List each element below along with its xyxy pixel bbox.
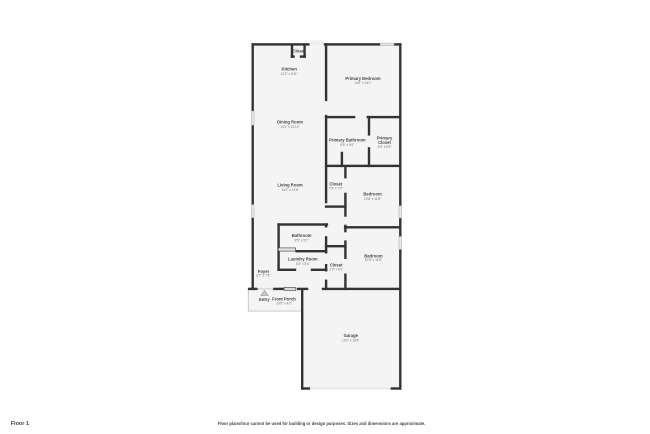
svg-text:14'3" x 8'11": 14'3" x 8'11" (281, 72, 298, 76)
svg-text:Bedroom: Bedroom (363, 192, 382, 197)
svg-text:6'7" x 7'6": 6'7" x 7'6" (257, 274, 271, 278)
svg-text:8'5" x 5'1": 8'5" x 5'1" (295, 238, 309, 242)
svg-text:Garage: Garage (344, 333, 359, 338)
svg-text:Entry: Entry (259, 297, 270, 302)
svg-text:5'3" x 5'4": 5'3" x 5'4" (296, 262, 310, 266)
svg-text:Closet: Closet (378, 140, 391, 145)
svg-text:14'3" x 13'8": 14'3" x 13'8" (281, 188, 298, 192)
svg-text:Laundry Room: Laundry Room (288, 257, 318, 262)
svg-text:19'2" x 19'4": 19'2" x 19'4" (342, 339, 359, 343)
svg-text:Living Room: Living Room (277, 183, 303, 188)
svg-text:14'8" x 14'1": 14'8" x 14'1" (354, 81, 371, 85)
svg-text:7'3" x 7'4": 7'3" x 7'4" (329, 187, 343, 191)
svg-text:Primary Bathroom: Primary Bathroom (329, 138, 366, 143)
svg-text:10'5" x 4'2": 10'5" x 4'2" (276, 302, 292, 306)
svg-text:Bathroom: Bathroom (292, 233, 312, 238)
svg-text:10'8" x 11'8": 10'8" x 11'8" (365, 258, 382, 262)
svg-text:4'9" x 9'6": 4'9" x 9'6" (378, 145, 392, 149)
svg-text:Kitchen: Kitchen (282, 67, 298, 72)
svg-text:14'3" x 10'10": 14'3" x 10'10" (280, 125, 299, 129)
svg-text:8'5" x 9'6": 8'5" x 9'6" (340, 143, 354, 147)
svg-text:Primary Bedroom: Primary Bedroom (345, 76, 380, 81)
svg-text:Floor 1: Floor 1 (11, 421, 29, 427)
svg-text:2'3" x 8'1": 2'3" x 8'1" (329, 268, 343, 272)
svg-text:Dining Room: Dining Room (277, 120, 303, 125)
svg-text:10'8" x 11'8": 10'8" x 11'8" (364, 197, 381, 201)
svg-text:Closet: Closet (292, 48, 305, 53)
svg-text:Floor plans/tour cannot be use: Floor plans/tour cannot be used for buil… (218, 421, 426, 426)
